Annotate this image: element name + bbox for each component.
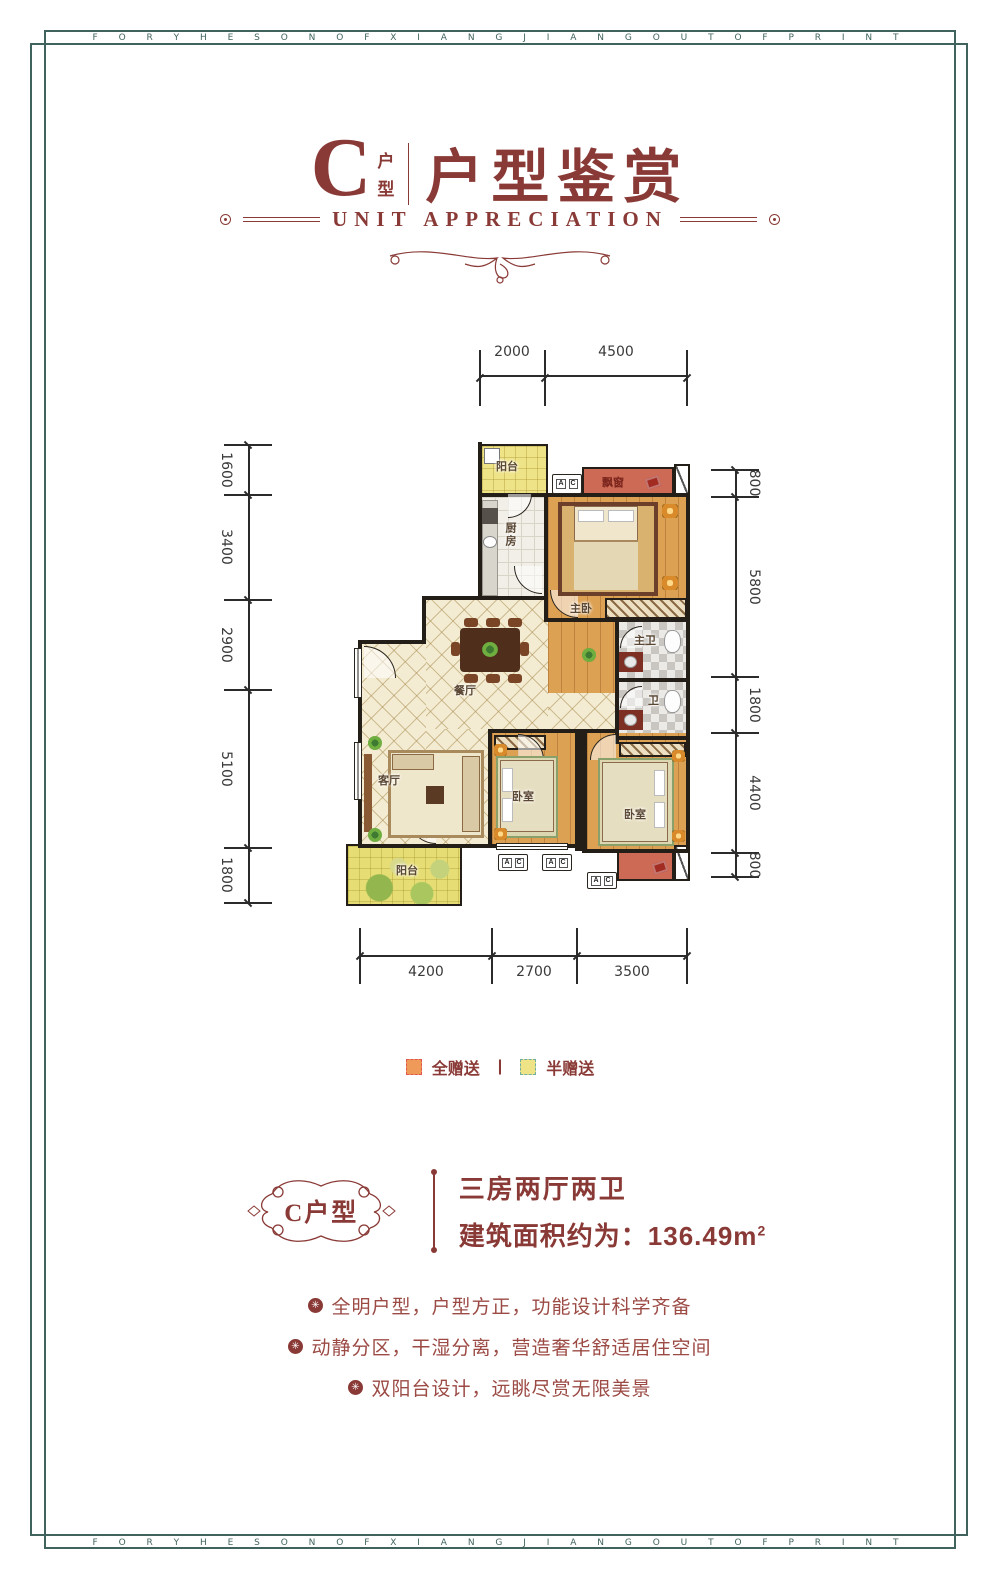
wall: [422, 596, 486, 600]
feature-item: 全明户型，户型方正，功能设计科学齐备: [308, 1292, 691, 1319]
room-label-dining: 餐厅: [454, 682, 476, 698]
kitchen-sink: [483, 536, 497, 548]
dim-label: 5100: [218, 751, 234, 787]
header-flourish: [0, 242, 1000, 284]
dim-label: 2000: [494, 344, 530, 360]
wall: [582, 849, 690, 853]
chair: [451, 642, 460, 656]
area-prefix: 建筑面积约为：: [459, 1221, 648, 1251]
unit-letter: C: [311, 128, 372, 208]
room-label-bath: 卫: [648, 692, 659, 708]
nightstand-lamp: [672, 750, 685, 762]
chair: [520, 642, 529, 656]
star-icon: [308, 1298, 323, 1313]
room-label-living: 客厅: [378, 772, 400, 788]
badge-label: C户型: [284, 1193, 358, 1229]
dim-tick: [224, 902, 272, 904]
dim-tick: [711, 732, 759, 734]
ac-letter: A: [591, 876, 600, 886]
room-label-kitchen: 厨房: [502, 522, 518, 548]
chair: [486, 674, 500, 683]
cushion: [652, 860, 669, 875]
ac-unit-box: A C: [552, 474, 582, 494]
dim-tick: [224, 689, 272, 691]
frame-band-bottom: F O R Y H E S O N O F X I A N G J I A N …: [0, 1538, 1000, 1548]
bed-blanket: [574, 540, 638, 590]
scroll-ornament-icon: [769, 214, 780, 225]
chair: [508, 674, 522, 683]
unit-letter-suffix: 户 型: [377, 147, 394, 200]
ac-letter: C: [515, 858, 524, 868]
dim-tick: [479, 350, 481, 406]
ac-letter: C: [604, 876, 613, 886]
wall: [482, 596, 548, 600]
wall: [488, 733, 492, 848]
room-label-balcony-bottom: 阳台: [396, 862, 418, 878]
window: [496, 843, 568, 850]
cushion: [645, 475, 662, 490]
dim-tick: [224, 847, 272, 849]
dim-line: [360, 955, 687, 957]
dim-label: 2700: [516, 964, 552, 980]
dim-tick: [544, 350, 546, 406]
gift-legend: 全赠送 | 半赠送: [0, 1055, 1000, 1079]
dim-label: 3400: [218, 529, 234, 565]
nightstand-lamp: [662, 504, 678, 518]
dim-label: 4200: [408, 964, 444, 980]
stack-top: 户: [377, 147, 394, 172]
frame-band-top: F O R Y H E S O N O F X I A N G J I A N …: [0, 33, 1000, 43]
room-label-bedroom-right: 卧室: [624, 806, 646, 822]
area-line: 建筑面积约为：136.49m2: [459, 1216, 766, 1253]
half-gift-label: 半赠送: [546, 1055, 594, 1079]
feature-item: 动静分区，干湿分离，营造奢华舒适居住空间: [288, 1333, 711, 1360]
subtitle-text: UNIT APPRECIATION: [332, 207, 668, 232]
tv-cabinet: [364, 754, 372, 832]
table-centerpiece: [482, 642, 498, 657]
bath-sink: [624, 656, 637, 668]
room-label-master-bath: 主卫: [634, 632, 656, 648]
ac-letter: C: [569, 479, 578, 489]
dim-tick: [359, 928, 361, 984]
half-gift-swatch-icon: [520, 1059, 536, 1075]
legend-separator: |: [498, 1058, 502, 1076]
wall: [575, 733, 587, 851]
title-divider: [408, 143, 409, 205]
wall: [686, 493, 690, 853]
bed-pillow: [654, 802, 665, 828]
area-sup: 2: [757, 1222, 766, 1238]
flourish-icon: [385, 242, 615, 284]
plant: [582, 648, 596, 662]
wall: [615, 736, 690, 740]
dim-line: [735, 470, 737, 877]
nightstand-lamp: [494, 828, 507, 840]
dim-line: [248, 445, 250, 903]
poster-page: F O R Y H E S O N O F X I A N G J I A N …: [0, 0, 1000, 1579]
plant: [368, 828, 382, 842]
plant: [368, 736, 382, 750]
dim-label: 4500: [598, 344, 634, 360]
star-icon: [348, 1380, 363, 1395]
ac-letter: A: [546, 858, 555, 868]
unit-badge: C户型: [234, 1168, 409, 1254]
room-label-balcony-top: 阳台: [496, 458, 518, 474]
ac-letter: C: [559, 858, 568, 868]
ac-unit-box: A C: [587, 872, 617, 889]
feature-item: 双阳台设计，远眺尽赏无限美景: [348, 1374, 651, 1401]
room-label-bedroom-mid: 卧室: [512, 788, 534, 804]
corridor-floor: [548, 693, 619, 729]
dim-label: 1800: [218, 857, 234, 893]
feature-text: 动静分区，干湿分离，营造奢华舒适居住空间: [311, 1333, 711, 1360]
room-label-master-bedroom: 主卧: [570, 600, 592, 616]
dim-label: 3500: [614, 964, 650, 980]
feature-text: 双阳台设计，远眺尽赏无限美景: [371, 1374, 651, 1401]
stove: [482, 508, 498, 524]
feature-list: 全明户型，户型方正，功能设计科学齐备 动静分区，干湿分离，营造奢华舒适居住空间 …: [0, 1292, 1000, 1401]
stack-bottom: 型: [377, 175, 394, 200]
layout-line: 三房两厅两卫: [459, 1169, 766, 1206]
chair: [464, 618, 478, 627]
dim-label: 800: [746, 852, 762, 879]
wall: [488, 729, 619, 733]
bath-sink: [624, 714, 637, 726]
dim-label: 2900: [218, 627, 234, 663]
dim-line: [480, 375, 687, 377]
summary-text: 三房两厅两卫 建筑面积约为：136.49m2: [459, 1169, 766, 1253]
nightstand-lamp: [662, 576, 678, 590]
window: [354, 742, 362, 800]
ornament-line: [680, 217, 757, 222]
dim-tick: [224, 444, 272, 446]
coffee-table: [426, 786, 444, 804]
toilet: [664, 630, 681, 653]
area-value: 136.49m: [648, 1221, 758, 1251]
dim-tick: [224, 599, 272, 601]
summary-divider: [433, 1173, 435, 1249]
bed-pillow: [578, 510, 604, 522]
toilet: [664, 690, 681, 713]
ornament-line: [243, 217, 320, 222]
ac-unit-box: A C: [498, 854, 528, 871]
dim-tick: [686, 350, 688, 406]
full-gift-swatch-icon: [406, 1059, 422, 1075]
floor-plan: A C A C A C A C: [230, 330, 790, 1010]
window: [354, 648, 362, 698]
room-label-bay-window: 飘窗: [602, 474, 624, 490]
bed-pillow: [654, 770, 665, 796]
dim-tick: [491, 928, 493, 984]
wall: [544, 493, 548, 622]
subtitle-row: UNIT APPRECIATION: [220, 207, 780, 232]
chair: [486, 618, 500, 627]
sofa: [392, 754, 434, 770]
unit-summary: C户型 三房两厅两卫 建筑面积约为：136.49m2: [0, 1168, 1000, 1254]
scroll-ornament-icon: [220, 214, 231, 225]
dim-label: 5800: [746, 569, 762, 605]
bay-window-bottom: [617, 851, 674, 881]
dim-label: 1600: [218, 452, 234, 488]
full-gift-label: 全赠送: [432, 1055, 480, 1079]
wall: [615, 678, 690, 682]
wall: [422, 596, 426, 644]
ac-letter: A: [502, 858, 511, 868]
dim-tick: [576, 928, 578, 984]
dim-label: 1800: [746, 687, 762, 723]
sofa: [462, 756, 480, 832]
dim-label: 800: [746, 470, 762, 497]
feature-text: 全明户型，户型方正，功能设计科学齐备: [331, 1292, 691, 1319]
dim-tick: [224, 494, 272, 496]
dim-tick: [711, 676, 759, 678]
nightstand-lamp: [494, 744, 507, 756]
chair: [508, 618, 522, 627]
page-title: C 户 型 户型鉴赏: [0, 122, 1000, 214]
title-text: 户型鉴赏: [425, 130, 689, 214]
nightstand-lamp: [672, 830, 685, 842]
dim-tick: [686, 928, 688, 984]
dim-label: 4400: [746, 775, 762, 811]
bed-pillow: [608, 510, 634, 522]
ac-unit-box: A C: [542, 854, 572, 871]
wall: [358, 640, 426, 644]
wardrobe: [605, 598, 687, 619]
ac-letter: A: [556, 479, 565, 489]
star-icon: [288, 1339, 303, 1354]
